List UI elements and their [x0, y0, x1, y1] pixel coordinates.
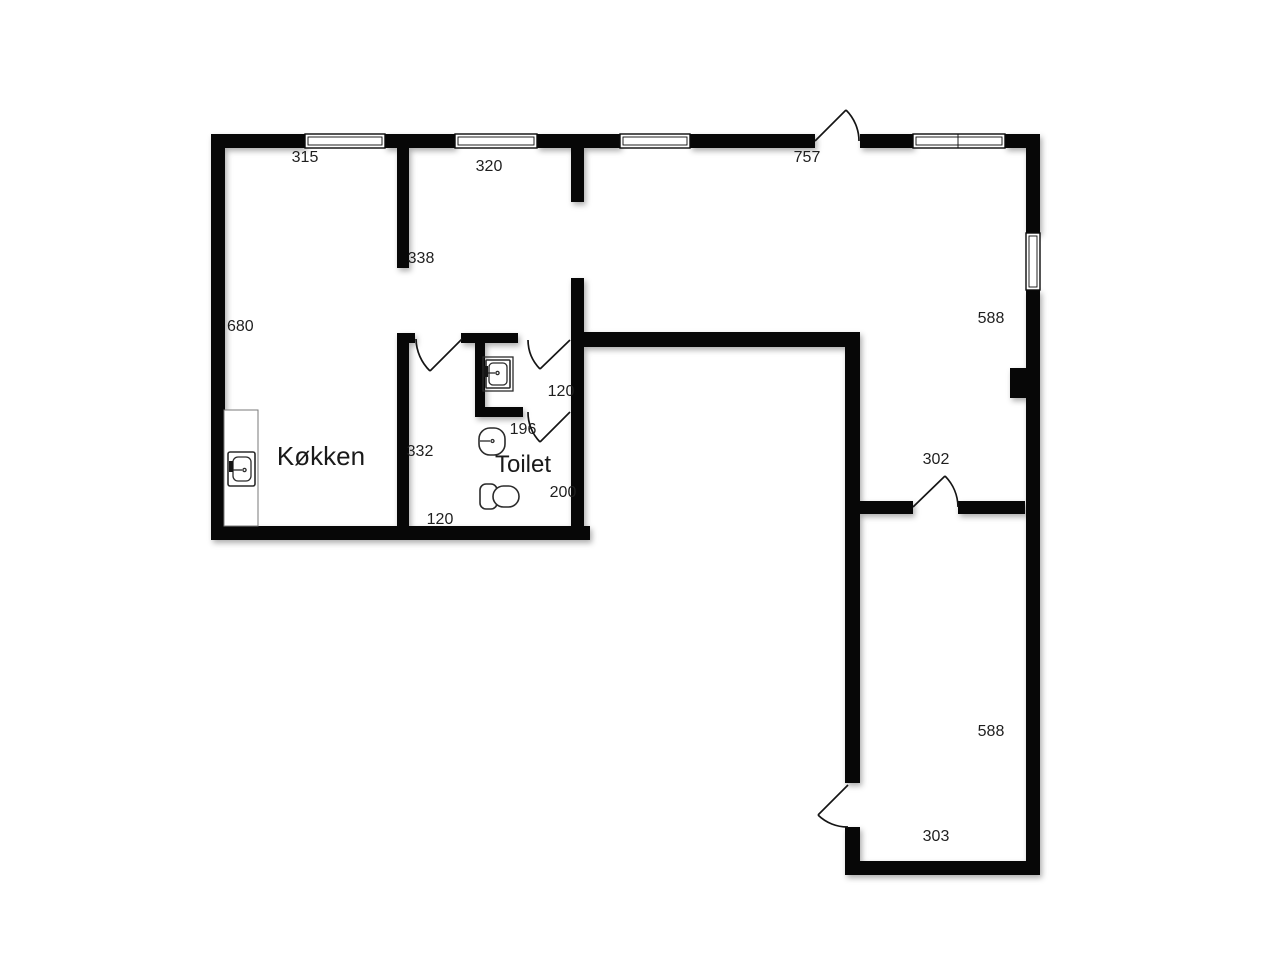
window	[913, 134, 1005, 148]
niche-bottom-wall	[475, 407, 523, 417]
dimension-label: 332	[407, 443, 434, 460]
exterior-wall-top	[537, 134, 620, 148]
dimension-label: 588	[978, 723, 1005, 740]
hall-top-wall	[461, 333, 518, 343]
dimension-label: 120	[427, 511, 454, 528]
wing-wall-bottom	[845, 861, 1040, 875]
dimension-label: 757	[794, 149, 821, 166]
partition-wall-lower	[397, 333, 409, 526]
hall-door	[416, 339, 462, 371]
wing-exterior-door	[818, 785, 848, 827]
dimension-label: 200	[550, 484, 577, 501]
room-label-kitchen: Køkken	[277, 441, 365, 471]
exterior-wall-top	[211, 134, 305, 148]
window	[455, 134, 537, 148]
window	[620, 134, 690, 148]
wing-wall-left	[845, 332, 860, 783]
washbasin	[483, 357, 513, 391]
window	[1026, 233, 1040, 290]
wall-pillar	[1010, 368, 1027, 398]
kitchen-sink	[228, 452, 255, 486]
dimension-label: 320	[476, 158, 503, 175]
dimension-label: 302	[923, 451, 950, 468]
fixtures-group	[224, 357, 519, 526]
dimension-label: 120	[548, 383, 575, 400]
dimension-label: 196	[510, 421, 537, 438]
wing-divider-wall	[860, 501, 913, 514]
dimension-label: 680	[227, 318, 254, 335]
floor-plan-page: 315 320 757 338 680 588 120 196 332 200 …	[0, 0, 1280, 960]
hall-top-wall	[397, 333, 415, 343]
exterior-wall-left	[211, 134, 225, 540]
window	[305, 134, 385, 148]
wall-stub-upper	[571, 148, 584, 202]
toilet-fixture	[480, 484, 519, 509]
floor-plan-canvas: 315 320 757 338 680 588 120 196 332 200 …	[0, 0, 1280, 960]
exterior-wall-top	[385, 134, 455, 148]
entrance-door	[815, 110, 859, 141]
inner-wall-horizontal	[575, 332, 860, 347]
exterior-wall-top	[690, 134, 815, 148]
exterior-wall-top	[860, 134, 913, 148]
exterior-wall-right	[1026, 134, 1040, 233]
exterior-wall-bottom-left	[211, 526, 590, 540]
wing-interior-door	[913, 476, 958, 507]
room-label-toilet: Toilet	[495, 451, 551, 478]
dimension-label: 315	[292, 149, 319, 166]
wing-divider-wall	[958, 501, 1025, 514]
dimension-label: 588	[978, 310, 1005, 327]
niche-door	[528, 340, 570, 369]
exterior-wall-right	[1026, 290, 1040, 875]
labels-group: 315 320 757 338 680 588 120 196 332 200 …	[227, 149, 1004, 845]
dimension-label: 338	[408, 250, 435, 267]
dimension-label: 303	[923, 828, 950, 845]
